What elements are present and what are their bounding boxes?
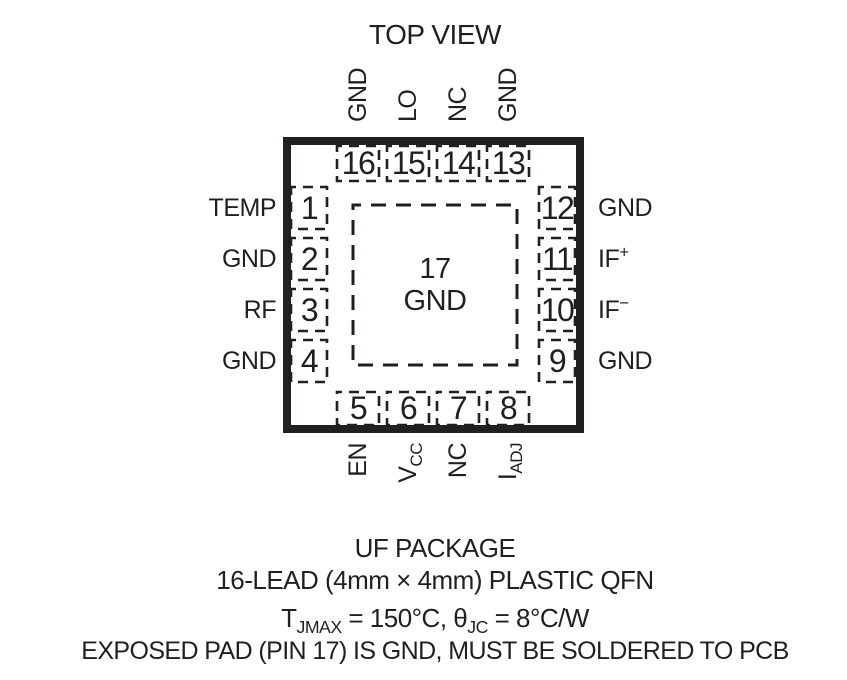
pin-12-number: 12 bbox=[539, 187, 575, 229]
qfn-pinout-figure: TOP VIEW 16 15 14 13 1 2 3 4 12 11 10 9 … bbox=[0, 0, 847, 680]
pin-15-top-label: LO bbox=[393, 12, 423, 122]
pin-6-number: 6 bbox=[387, 392, 429, 425]
pin-14-top-label: NC bbox=[443, 12, 473, 122]
pin-12-label: GND bbox=[598, 193, 652, 223]
exposed-pad-label: GND bbox=[404, 285, 467, 317]
pin-13-top-label: GND bbox=[493, 12, 523, 122]
pin-3-label: RF bbox=[244, 295, 276, 325]
pin-10-number: 10 bbox=[539, 289, 575, 331]
pin-3-number: 3 bbox=[291, 289, 327, 331]
pin-2-label: GND bbox=[222, 244, 276, 274]
exposed-pad-text: 17 GND bbox=[353, 205, 517, 365]
pin-15-number: 15 bbox=[387, 146, 429, 181]
pin-8-number: 8 bbox=[487, 392, 529, 425]
pin-1-number: 1 bbox=[291, 187, 327, 229]
pin-1-label: TEMP bbox=[209, 193, 276, 223]
pin-4-number: 4 bbox=[291, 340, 327, 382]
pin-4-label: GND bbox=[222, 346, 276, 376]
pin-16-number: 16 bbox=[337, 146, 379, 181]
pin-7-number: 7 bbox=[437, 392, 479, 425]
pin-11-number: 11 bbox=[539, 238, 575, 280]
package-name: UF PACKAGE bbox=[35, 533, 835, 564]
pin-11-label: IF+ bbox=[598, 244, 629, 274]
package-description: 16-LEAD (4mm × 4mm) PLASTIC QFN bbox=[35, 565, 835, 596]
exposed-pad-note: EXPOSED PAD (PIN 17) IS GND, MUST BE SOL… bbox=[35, 637, 835, 666]
pin-2-number: 2 bbox=[291, 238, 327, 280]
thermal-spec: TJMAX = 150°C, θJC = 8°C/W bbox=[35, 603, 835, 634]
pin-14-number: 14 bbox=[437, 146, 479, 181]
pin-9-label: GND bbox=[598, 346, 652, 376]
exposed-pad-number: 17 bbox=[419, 253, 450, 285]
pin-5-number: 5 bbox=[337, 392, 379, 425]
pin-9-number: 9 bbox=[539, 340, 575, 382]
pin-13-number: 13 bbox=[487, 146, 529, 181]
pin-10-label: IF− bbox=[598, 295, 629, 325]
pin-16-top-label: GND bbox=[343, 12, 373, 122]
